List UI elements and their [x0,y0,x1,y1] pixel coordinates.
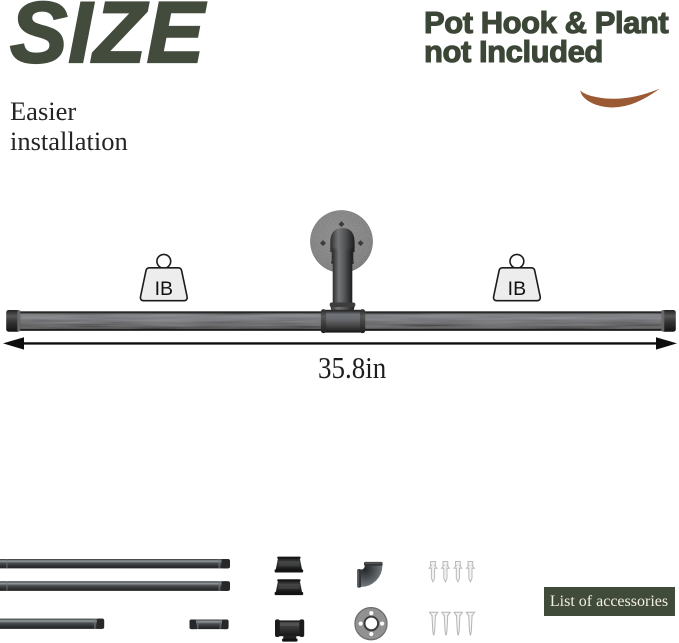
svg-text:IB: IB [508,278,526,300]
svg-text:IB: IB [155,278,173,300]
